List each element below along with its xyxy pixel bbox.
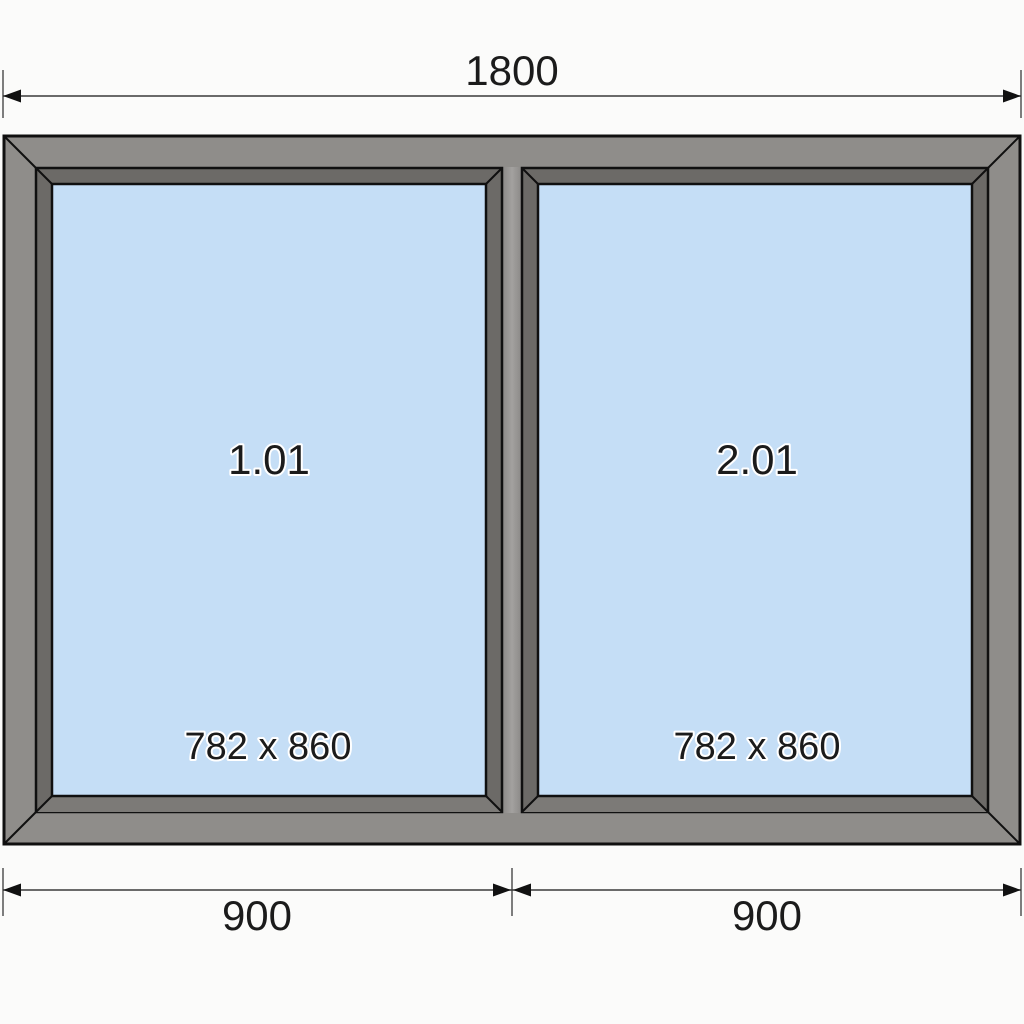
dimension-label-overall-width: 1800	[465, 47, 558, 94]
glass-right	[538, 184, 972, 796]
center-mullion	[502, 167, 522, 813]
panel-right: 2.01 782 x 860	[522, 168, 988, 812]
panel-right-glass-size: 782 x 860	[674, 726, 841, 768]
window-elevation-diagram: 1800 1.01 782 x 860 2.01 782 x 860	[0, 0, 1024, 1024]
glass-left	[52, 184, 486, 796]
dimension-label-right-panel-width: 900	[732, 892, 802, 939]
panel-left-label: 1.01	[228, 436, 310, 483]
panel-right-label: 2.01	[716, 436, 798, 483]
panel-left: 1.01 782 x 860	[36, 168, 502, 812]
sash-right-bottom-bevel	[522, 796, 988, 812]
dimension-label-left-panel-width: 900	[222, 892, 292, 939]
panel-left-glass-size: 782 x 860	[185, 726, 352, 768]
sash-left-bottom-bevel	[36, 796, 502, 812]
